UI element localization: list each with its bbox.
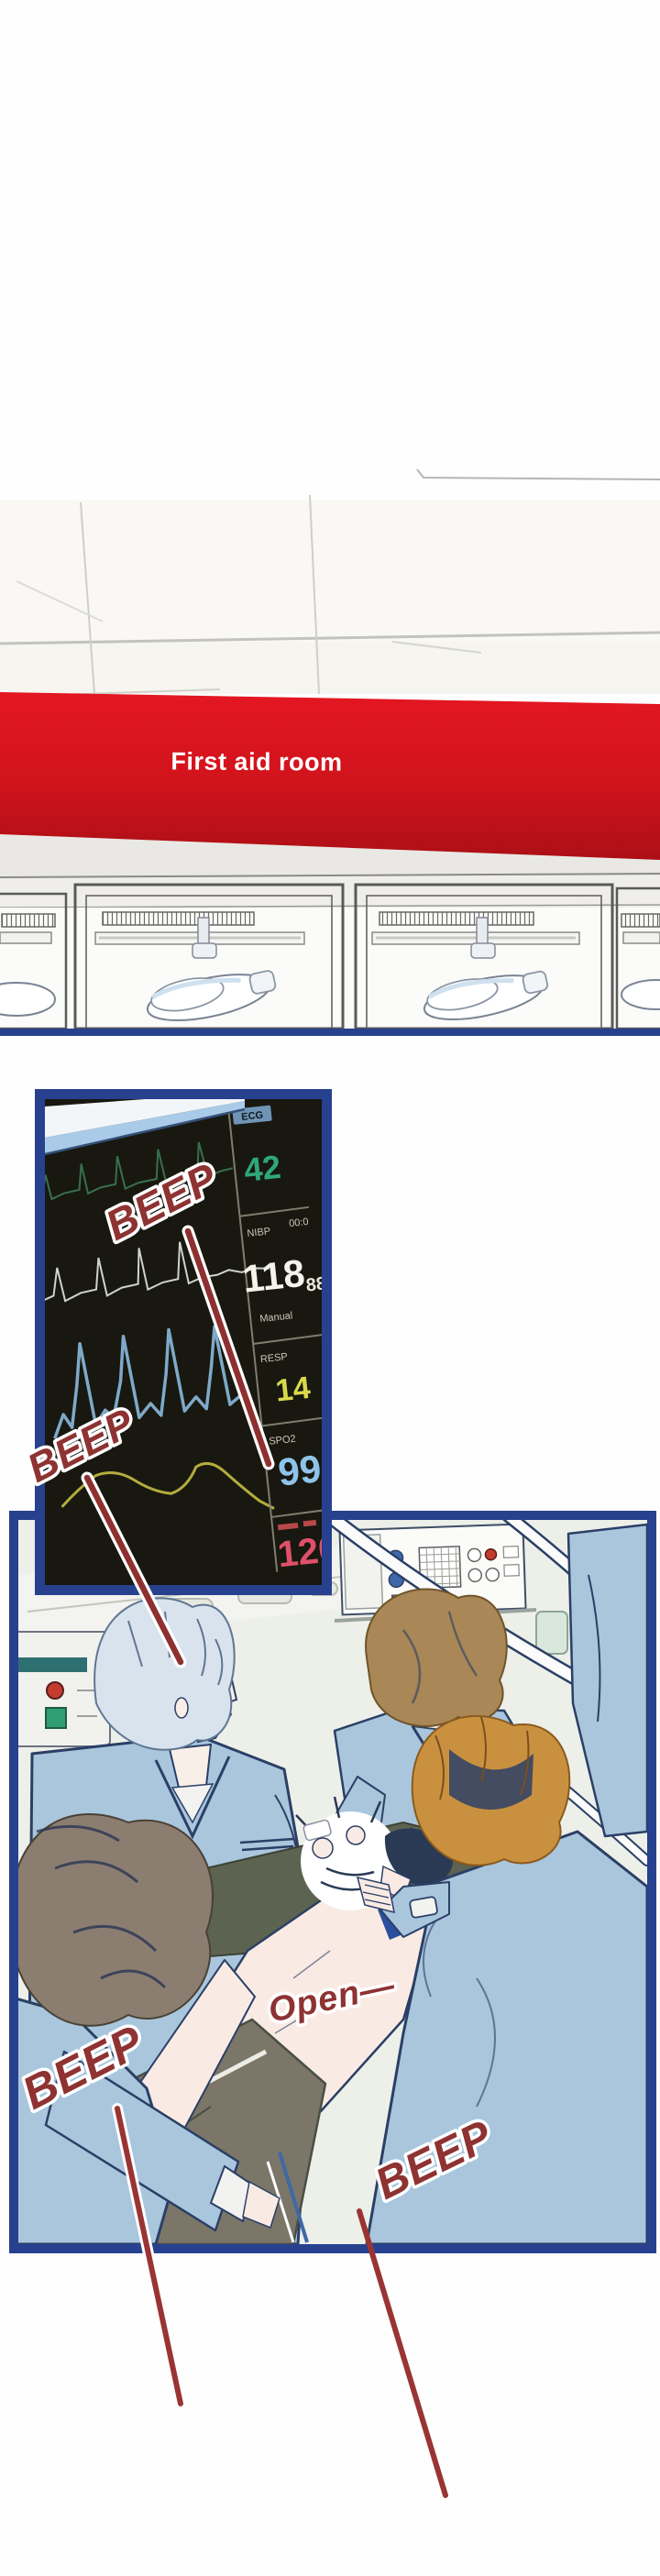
foreground-hair <box>18 1814 213 2026</box>
pulse-value: 120 <box>276 1529 322 1576</box>
nibp-value: 118 <box>240 1251 306 1301</box>
man-hair <box>94 1598 235 1749</box>
spo2-value: 99 <box>276 1447 322 1494</box>
vital-monitor-panel: ECG 42 NIBP 00:0 118 88 Manual RESP 14 S… <box>35 1089 332 1595</box>
resp-value: 14 <box>274 1371 313 1409</box>
treatment-scene <box>18 1520 647 2244</box>
comic-page: First aid room <box>0 0 660 2576</box>
red-button <box>47 1682 63 1699</box>
monitor-screen: ECG 42 NIBP 00:0 118 88 Manual RESP 14 S… <box>45 1099 322 1585</box>
glass-cup <box>536 1612 567 1654</box>
green-button <box>46 1708 66 1728</box>
nibp-secondary: 88 <box>305 1273 322 1295</box>
banner-label: First aid room <box>137 747 376 777</box>
door-window-strip <box>0 830 660 1040</box>
glass-wall <box>0 908 660 1029</box>
treatment-scene-panel <box>9 1511 656 2253</box>
navy-rail <box>0 1029 660 1036</box>
sound-line <box>359 2211 445 2495</box>
machine-screen-strip <box>18 1657 87 1672</box>
nibp-time: 00:0 <box>289 1216 310 1229</box>
woman-hair <box>366 1589 507 1726</box>
ecg-label: ECG <box>241 1110 264 1123</box>
ecg-value: 42 <box>242 1148 282 1189</box>
